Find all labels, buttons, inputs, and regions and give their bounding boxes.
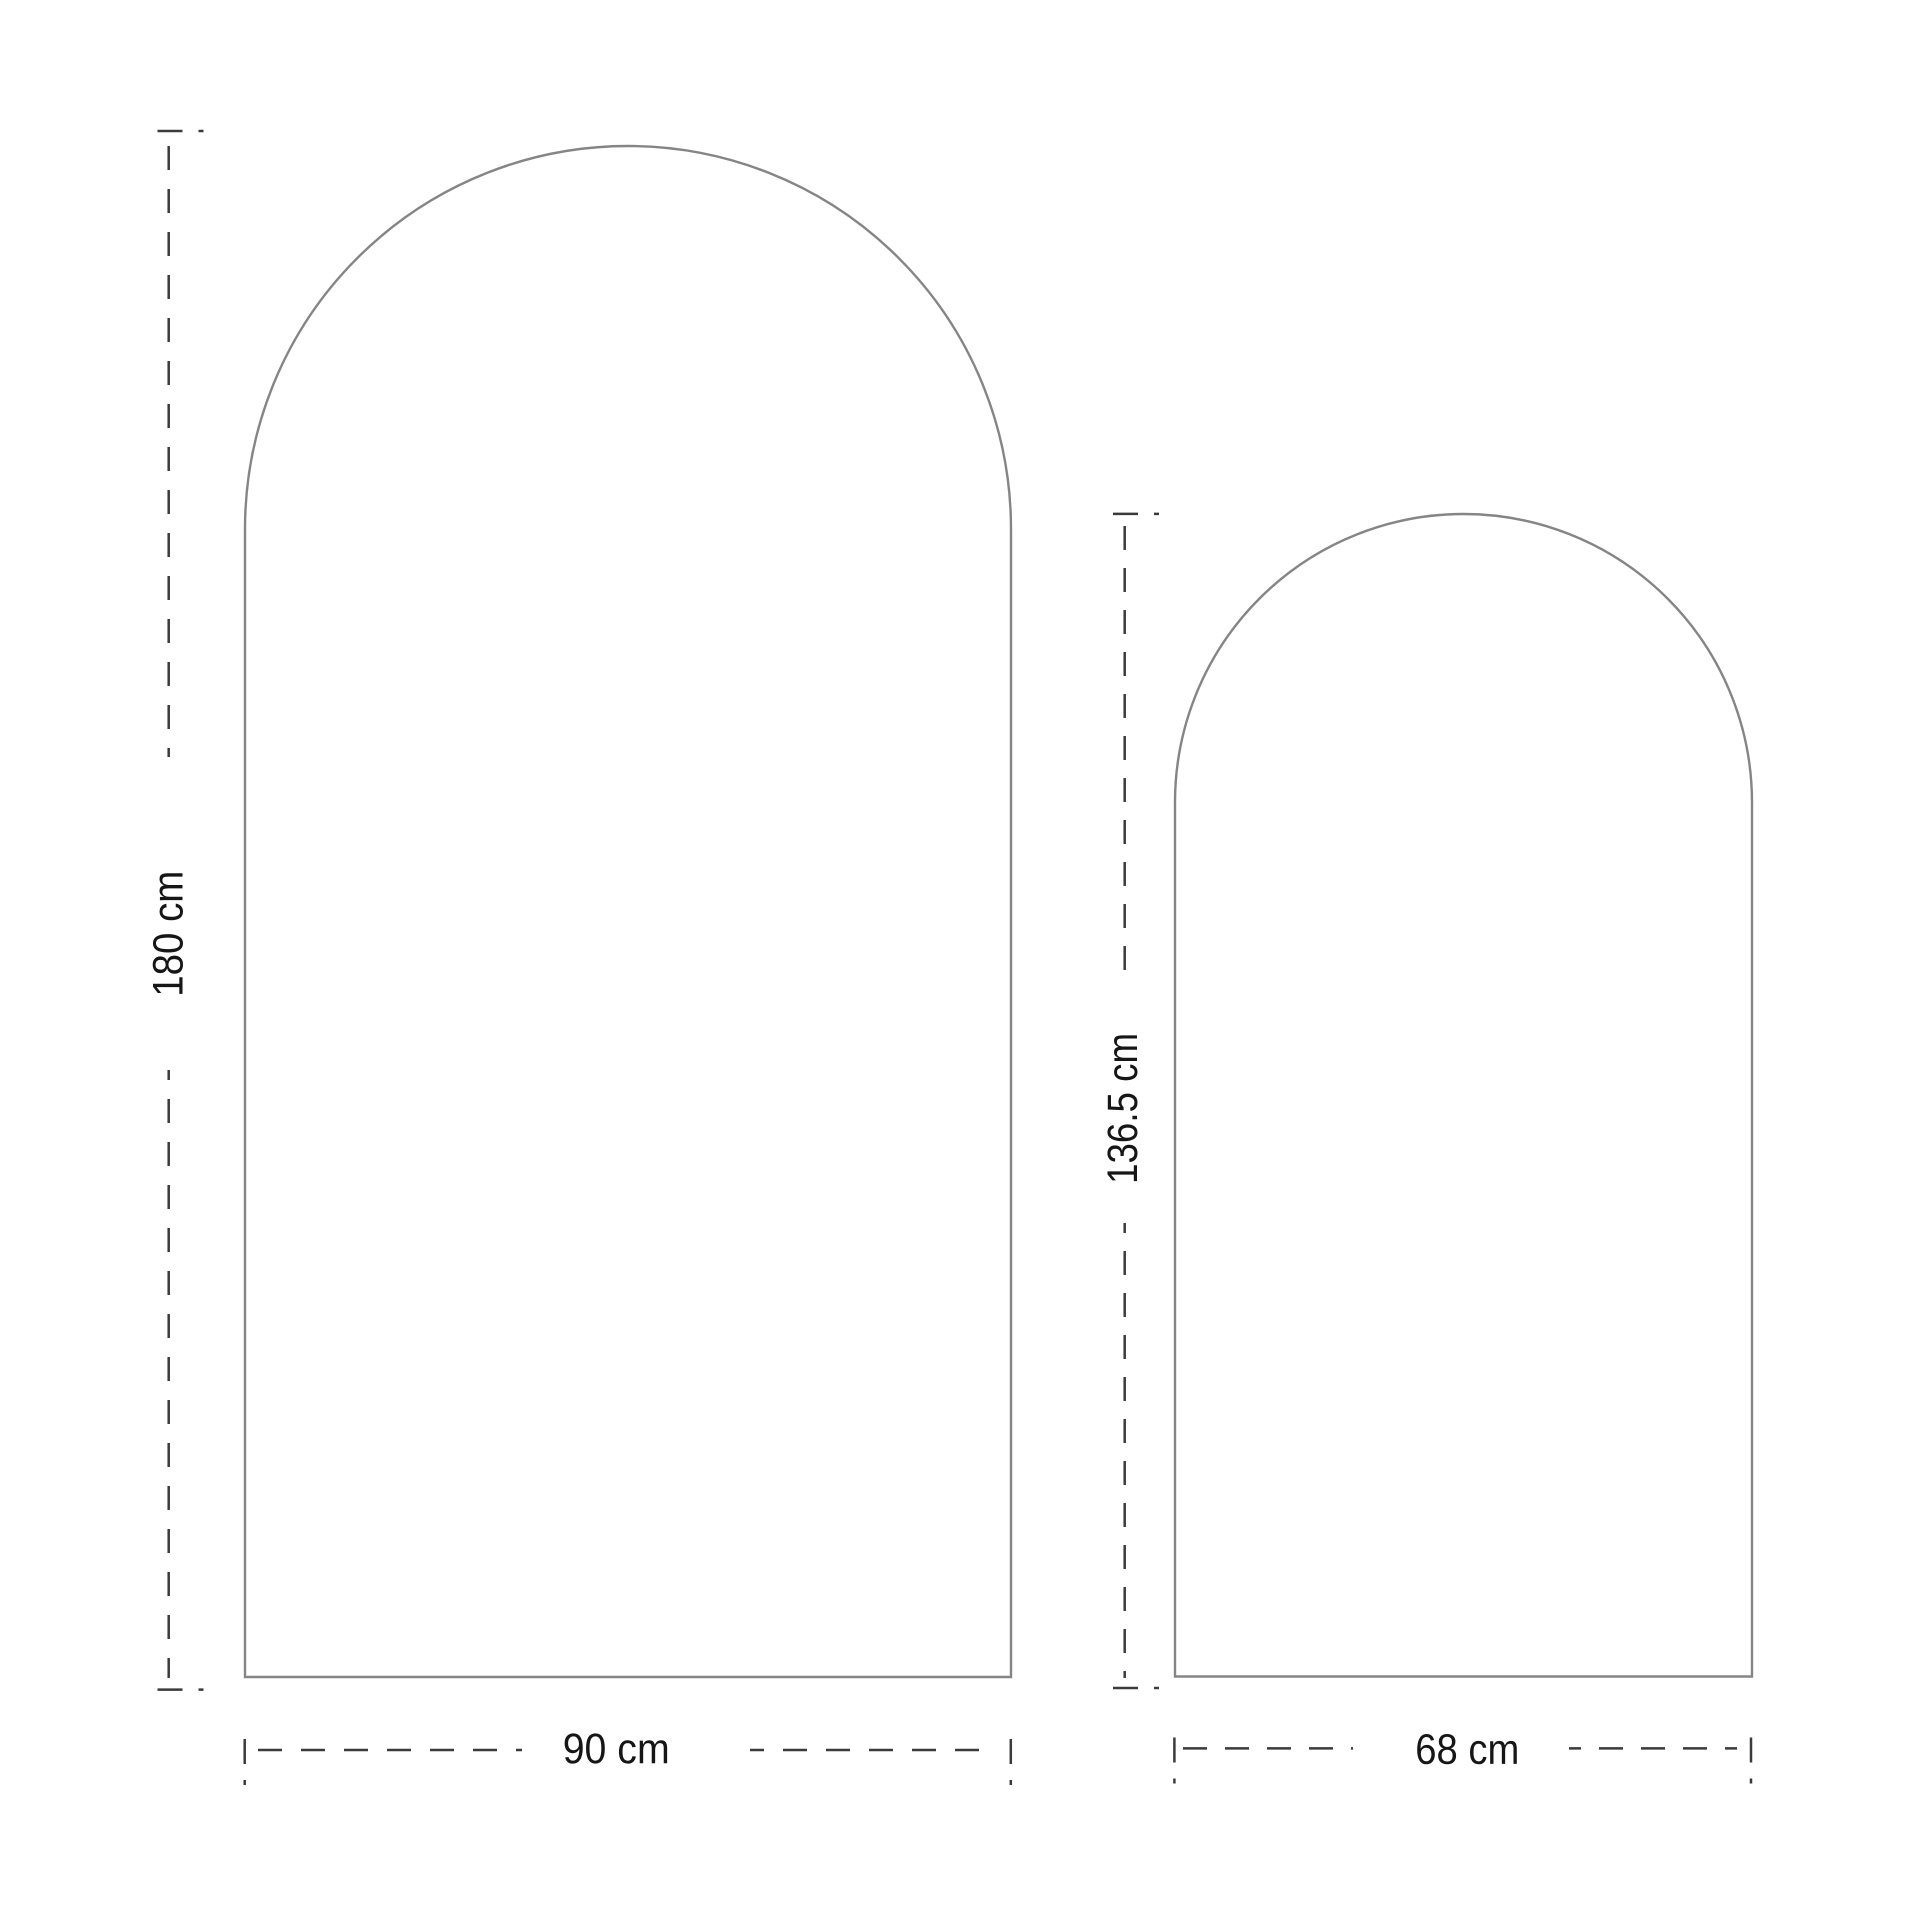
svg-text:136.5 cm: 136.5 cm: [1099, 1033, 1147, 1184]
svg-text:180 cm: 180 cm: [145, 871, 193, 997]
svg-text:90 cm: 90 cm: [563, 1725, 670, 1773]
svg-text:68 cm: 68 cm: [1415, 1726, 1519, 1774]
